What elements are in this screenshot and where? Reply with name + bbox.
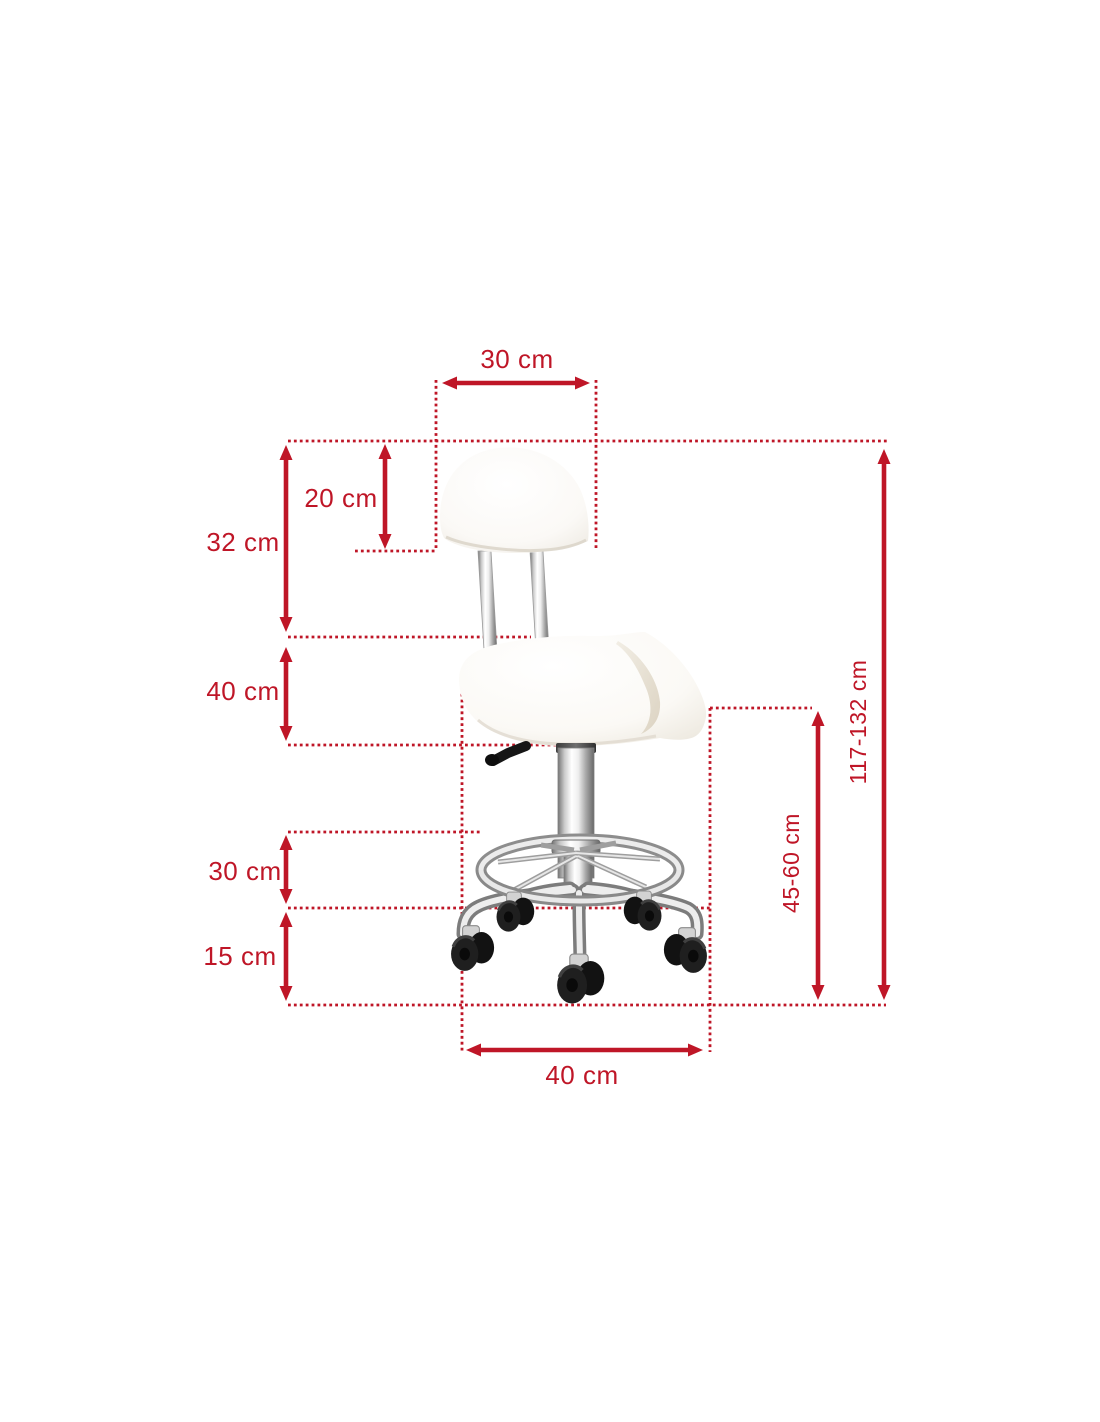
product-dimension-diagram: 30 cm20 cm32 cm40 cm30 cm15 cm45-60 cm11… bbox=[0, 0, 1100, 1422]
saddle-seat bbox=[459, 632, 706, 746]
dim-base-height: 15 cm bbox=[203, 912, 292, 1001]
dim-backrest-width: 30 cm bbox=[442, 344, 590, 390]
dim-arrowhead bbox=[280, 986, 293, 1001]
dim-arrowhead bbox=[280, 726, 293, 741]
dim-arrowhead bbox=[280, 835, 293, 850]
dim-label-backrest-width: 30 cm bbox=[480, 344, 553, 374]
dim-label-seat-section-height: 40 cm bbox=[206, 676, 279, 706]
dim-footrest-height: 30 cm bbox=[208, 835, 292, 904]
stool-illustration bbox=[440, 447, 707, 1003]
dim-label-total-height: 117-132 cm bbox=[845, 660, 871, 785]
dim-seat-height: 45-60 cm bbox=[778, 711, 825, 1000]
dim-arrowhead bbox=[280, 912, 293, 927]
dim-back-section-height: 32 cm bbox=[206, 445, 292, 632]
dim-arrowhead bbox=[379, 534, 392, 549]
adjustment-lever-cap bbox=[485, 754, 499, 766]
dim-arrowhead bbox=[280, 647, 293, 662]
dim-label-base-height: 15 cm bbox=[203, 941, 276, 971]
dim-seat-section-height: 40 cm bbox=[206, 647, 292, 741]
dim-label-base-width: 40 cm bbox=[545, 1060, 618, 1090]
dim-arrowhead bbox=[688, 1044, 703, 1057]
dim-arrowhead bbox=[575, 377, 590, 390]
dim-arrowhead bbox=[812, 985, 825, 1000]
dim-arrowhead bbox=[878, 449, 891, 464]
dim-arrowhead bbox=[280, 889, 293, 904]
dim-label-backrest-height: 20 cm bbox=[304, 483, 377, 513]
dim-backrest-height: 20 cm bbox=[304, 444, 391, 549]
dim-arrowhead bbox=[878, 985, 891, 1000]
dim-total-height: 117-132 cm bbox=[845, 449, 891, 1000]
dim-arrowhead bbox=[379, 444, 392, 459]
dim-arrowhead bbox=[280, 617, 293, 632]
diagram-svg: 30 cm20 cm32 cm40 cm30 cm15 cm45-60 cm11… bbox=[0, 0, 1100, 1422]
caster-front bbox=[557, 954, 604, 1003]
dim-arrowhead bbox=[280, 445, 293, 460]
dim-label-seat-height: 45-60 cm bbox=[778, 813, 804, 913]
dim-label-back-section-height: 32 cm bbox=[206, 527, 279, 557]
dim-base-width: 40 cm bbox=[466, 1044, 703, 1091]
dim-arrowhead bbox=[466, 1044, 481, 1057]
backrest-post-right bbox=[530, 551, 549, 650]
dim-label-footrest-height: 30 cm bbox=[208, 856, 281, 886]
dim-arrowhead bbox=[442, 377, 457, 390]
backrest-pad bbox=[440, 447, 589, 553]
backrest-post-left bbox=[478, 551, 497, 650]
dim-arrowhead bbox=[812, 711, 825, 726]
